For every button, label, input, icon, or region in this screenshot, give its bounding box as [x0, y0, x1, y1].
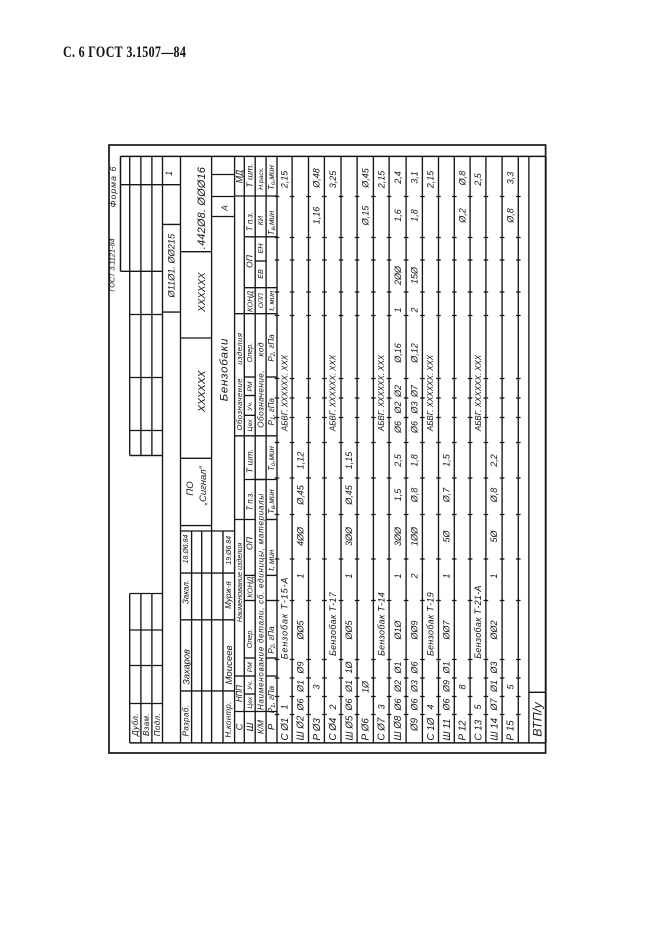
svg-text:5: 5 — [505, 683, 515, 689]
svg-text:2,5: 2,5 — [473, 172, 483, 186]
svg-text:Ш: Ш — [245, 722, 256, 731]
svg-text:2,4: 2,4 — [393, 171, 403, 185]
svg-text:Ø,8: Ø,8 — [489, 487, 499, 502]
svg-text:1,6: 1,6 — [393, 209, 403, 222]
svg-text:18.Ø6.84: 18.Ø6.84 — [183, 534, 190, 563]
svg-text:Ø3: Ø3 — [489, 661, 499, 674]
svg-text:Уч.: Уч. — [247, 401, 254, 412]
svg-text:1: 1 — [489, 573, 499, 578]
svg-text:НПП: НПП — [235, 684, 244, 701]
svg-text:Ø,45: Ø,45 — [295, 484, 305, 505]
svg-text:С Ø7: С Ø7 — [377, 717, 388, 740]
svg-text:3,25: 3,25 — [328, 169, 338, 187]
svg-text:Цех: Цех — [247, 418, 254, 431]
svg-text:Ø1: Ø1 — [441, 661, 451, 674]
svg-text:Ø1: Ø1 — [489, 679, 499, 692]
svg-text:1: 1 — [280, 704, 290, 709]
svg-text:1,15: 1,15 — [344, 450, 354, 468]
svg-text:1,5: 1,5 — [393, 487, 403, 500]
svg-text:5: 5 — [473, 703, 483, 709]
svg-text:ОП: ОП — [245, 254, 255, 268]
svg-text:ПО: ПО — [185, 480, 196, 495]
svg-text:2: 2 — [328, 704, 338, 710]
svg-text:Уч.: Уч. — [247, 680, 254, 691]
svg-text:2,15: 2,15 — [376, 169, 386, 188]
svg-text:Опер.: Опер. — [245, 342, 254, 362]
svg-text:3,3: 3,3 — [505, 171, 515, 184]
svg-text:1ØØ: 1ØØ — [409, 526, 419, 546]
svg-text:РМ: РМ — [247, 661, 254, 671]
svg-text:С Ø1: С Ø1 — [280, 717, 291, 740]
svg-text:Ø,15: Ø,15 — [360, 204, 370, 225]
svg-text:АБВГ. XXXXXX. XXX: АБВГ. XXXXXX. XXX — [426, 354, 435, 432]
svg-text:С 1Ø: С 1Ø — [426, 716, 437, 740]
svg-text:Ø7: Ø7 — [409, 384, 419, 398]
svg-text:Ø6: Ø6 — [409, 698, 419, 711]
svg-text:Ø,12: Ø,12 — [409, 343, 419, 363]
svg-text:Наименование изделия: Наименование изделия — [235, 542, 244, 622]
svg-text:То,мин: То,мин — [267, 445, 277, 470]
svg-text:Т п.з.: Т п.з. — [245, 211, 254, 230]
svg-text:1,16: 1,16 — [312, 206, 322, 224]
svg-text:Ø6: Ø6 — [409, 661, 419, 674]
svg-text:15Ø: 15Ø — [409, 266, 419, 284]
svg-text:Бензобаки: Бензобаки — [218, 337, 230, 401]
svg-text:Ø1Ø: Ø1Ø — [393, 619, 403, 640]
svg-text:ØØ9: ØØ9 — [409, 620, 419, 640]
svg-text:Т шт.: Т шт. — [245, 163, 255, 187]
svg-text:Ø11Ø1. ØØ215: Ø11Ø1. ØØ215 — [167, 232, 177, 298]
svg-text:Опер.: Опер. — [245, 628, 254, 648]
svg-text:1,8: 1,8 — [409, 209, 419, 222]
svg-text:АБВГ. XXXXXX. XXX: АБВГ. XXXXXX. XXX — [328, 354, 337, 432]
svg-text:Ø,8: Ø,8 — [409, 487, 419, 502]
svg-text:2,2: 2,2 — [489, 454, 499, 467]
svg-text:2,5: 2,5 — [393, 453, 403, 467]
svg-text:1: 1 — [164, 170, 174, 175]
svg-text:Ø2: Ø2 — [393, 385, 403, 398]
svg-text:То,мин: То,мин — [267, 164, 277, 189]
svg-text:2,15: 2,15 — [280, 169, 290, 188]
svg-text:ØØ5: ØØ5 — [344, 619, 354, 640]
svg-text:КОНД: КОНД — [245, 575, 254, 597]
svg-text:Р Ø3: Р Ø3 — [312, 717, 323, 740]
svg-text:ØØ5: ØØ5 — [295, 619, 305, 640]
svg-text:Н.расх.: Н.расх. — [258, 166, 265, 189]
svg-text:1,12: 1,12 — [295, 451, 305, 469]
svg-text:Обозначение изделия: Обозначение изделия — [235, 332, 244, 430]
svg-text:Подл.: Подл. — [153, 712, 162, 735]
svg-text:3ØØ: 3ØØ — [344, 526, 354, 546]
svg-text:Ш Ø8: Ш Ø8 — [393, 715, 404, 740]
svg-text:С Ø4: С Ø4 — [328, 717, 339, 740]
svg-text:КОНД: КОНД — [245, 290, 254, 312]
svg-text:Ш Ø5: Ш Ø5 — [344, 715, 355, 740]
svg-text:РМ: РМ — [247, 381, 254, 391]
svg-text:Цех: Цех — [247, 696, 254, 709]
svg-text:Р 15: Р 15 — [506, 719, 517, 740]
svg-text:1: 1 — [344, 573, 354, 578]
svg-text:Форма 6: Форма 6 — [108, 165, 118, 207]
svg-text:Ø6: Ø6 — [441, 698, 451, 711]
svg-text:АБВГ. XXXXXX. XXX: АБВГ. XXXXXX. XXX — [280, 354, 289, 432]
svg-text:Взам.: Взам. — [142, 712, 151, 735]
svg-text:Тв,мин: Тв,мин — [267, 488, 277, 513]
svg-text:Ø2: Ø2 — [393, 679, 403, 692]
svg-text:Бензобак Т-15-А: Бензобак Т-15-А — [280, 576, 290, 659]
svg-text:P2, гПа: P2, гПа — [267, 625, 277, 653]
svg-text:Т п.з.: Т п.з. — [245, 491, 254, 510]
svg-text:2ØØ: 2ØØ — [393, 265, 403, 286]
svg-text:Ø6: Ø6 — [409, 421, 419, 434]
svg-text:Ø,2: Ø,2 — [457, 208, 467, 223]
svg-text:P2, гПа: P2, гПа — [267, 333, 277, 361]
svg-text:P1, гПа: P1, гПа — [267, 397, 277, 425]
svg-text:1,8: 1,8 — [409, 454, 419, 467]
svg-text:Ш 14: Ш 14 — [489, 717, 500, 740]
svg-text:Ø6: Ø6 — [393, 698, 403, 711]
svg-text:Ø,7: Ø,7 — [441, 486, 451, 502]
svg-text:ЕН: ЕН — [256, 242, 265, 253]
svg-text:Моисеев: Моисеев — [224, 645, 235, 684]
svg-text:Ш Ø2: Ш Ø2 — [296, 715, 307, 740]
svg-text:Ø3: Ø3 — [409, 679, 419, 692]
svg-text:3ØØ: 3ØØ — [393, 526, 403, 546]
svg-text:4: 4 — [425, 704, 435, 709]
svg-text:Наименование детали, сб. ед: Наименование детали, сб. единицы, матери… — [256, 492, 265, 709]
svg-text:ØØ2: ØØ2 — [489, 620, 499, 640]
svg-text:Разраб.: Разраб. — [182, 704, 191, 736]
svg-text:С: С — [234, 723, 245, 730]
svg-text:5Ø: 5Ø — [489, 529, 499, 542]
svg-text:К/М: К/М — [256, 719, 265, 733]
svg-text:Ø,45: Ø,45 — [360, 167, 370, 188]
svg-text:.442Ø8. ØØØ16: .442Ø8. ØØØ16 — [196, 166, 208, 248]
svg-text:Ø6: Ø6 — [344, 698, 354, 711]
svg-text:3: 3 — [376, 704, 386, 709]
svg-text:Ø6: Ø6 — [393, 421, 403, 434]
svg-text:Ø1: Ø1 — [393, 661, 403, 674]
svg-text:Ø,45: Ø,45 — [344, 484, 354, 505]
svg-text:1: 1 — [393, 307, 403, 312]
svg-text:Бензобак Т-14: Бензобак Т-14 — [376, 591, 386, 655]
svg-text:Ø6: Ø6 — [295, 698, 305, 711]
svg-text:t, мин: t, мин — [267, 290, 276, 311]
svg-text:Р Ø6: Р Ø6 — [361, 717, 372, 740]
svg-text:Ø7: Ø7 — [489, 697, 499, 711]
svg-text:Ø,16: Ø,16 — [393, 343, 403, 363]
svg-text:t, мин: t, мин — [267, 549, 276, 571]
svg-text:19.Ø6.84: 19.Ø6.84 — [226, 535, 233, 564]
svg-text:3,1: 3,1 — [409, 171, 419, 184]
svg-text:Ø2: Ø2 — [393, 401, 403, 414]
svg-text:2: 2 — [409, 573, 419, 579]
svg-text:„Сигнал”: „Сигнал” — [198, 465, 209, 506]
svg-text:Ш 11: Ш 11 — [442, 718, 453, 740]
svg-text:5Ø: 5Ø — [441, 529, 451, 542]
svg-text:Бензобак Т-19: Бензобак Т-19 — [425, 591, 435, 655]
svg-text:Обозначение, код: Обозначение, код — [255, 342, 265, 428]
svg-text:Ø,8: Ø,8 — [505, 208, 515, 223]
svg-text:Бензобак Т-21-А: Бензобак Т-21-А — [473, 585, 483, 659]
svg-text:1: 1 — [295, 573, 305, 578]
svg-text:АБВГ. XXXXXX. XXX: АБВГ. XXXXXX. XXX — [474, 354, 483, 432]
svg-text:1: 1 — [441, 573, 451, 578]
svg-text:1Ø: 1Ø — [344, 660, 354, 673]
svg-text:МД: МД — [234, 169, 244, 183]
svg-text:1Ø: 1Ø — [360, 679, 370, 692]
svg-text:3: 3 — [312, 684, 322, 689]
svg-text:Захаров: Захаров — [181, 648, 191, 684]
svg-text:P1, гПа: P1, гПа — [267, 685, 277, 713]
svg-text:Ø9: Ø9 — [295, 661, 305, 674]
svg-text:С 13: С 13 — [473, 719, 484, 740]
svg-text:Ø,8: Ø,8 — [457, 170, 467, 185]
svg-text:Р: Р — [267, 723, 278, 730]
svg-text:8: 8 — [457, 684, 467, 689]
svg-text:1: 1 — [393, 573, 403, 578]
svg-text:КИ: КИ — [256, 214, 265, 224]
svg-text:Ø1: Ø1 — [295, 679, 305, 692]
svg-text:Ø3: Ø3 — [409, 401, 419, 414]
svg-text:ОП: ОП — [245, 536, 255, 550]
svg-text:Мурж-я: Мурж-я — [224, 580, 233, 608]
svg-text:А: А — [219, 204, 229, 211]
svg-text:ØØ7: ØØ7 — [441, 619, 451, 640]
svg-text:ОПП: ОПП — [258, 293, 265, 308]
svg-text:Р 12: Р 12 — [458, 719, 469, 740]
svg-text:ЕВ: ЕВ — [256, 269, 265, 279]
svg-text:Т шт.: Т шт. — [245, 448, 255, 472]
svg-text:XXXXXX: XXXXXX — [197, 369, 208, 413]
svg-text:Ø,48: Ø,48 — [312, 168, 322, 188]
svg-text:Тв,мин: Тв,мин — [267, 210, 277, 235]
svg-text:4ØØ: 4ØØ — [295, 526, 305, 546]
svg-text:Бензобак Т-17: Бензобак Т-17 — [328, 591, 338, 656]
svg-text:2,15: 2,15 — [425, 169, 435, 188]
svg-text:XXXXXX: XXXXXX — [197, 271, 208, 312]
svg-text:Ø9: Ø9 — [441, 679, 451, 692]
svg-text:Дубл.: Дубл. — [131, 713, 140, 737]
svg-text:Ø1: Ø1 — [344, 679, 354, 692]
svg-text:Ø9: Ø9 — [410, 717, 421, 732]
svg-text:1,5: 1,5 — [441, 453, 451, 466]
svg-text:АБВГ. XXXXXX. XXX: АБВГ. XXXXXX. XXX — [377, 354, 386, 432]
svg-text:Закал.: Закал. — [181, 579, 190, 603]
svg-text:2: 2 — [409, 307, 419, 313]
svg-text:ГОСТ 3.1121-84: ГОСТ 3.1121-84 — [108, 238, 116, 291]
svg-text:Н.контр.: Н.контр. — [224, 701, 233, 737]
svg-text:ВТП/у: ВТП/у — [531, 701, 545, 736]
